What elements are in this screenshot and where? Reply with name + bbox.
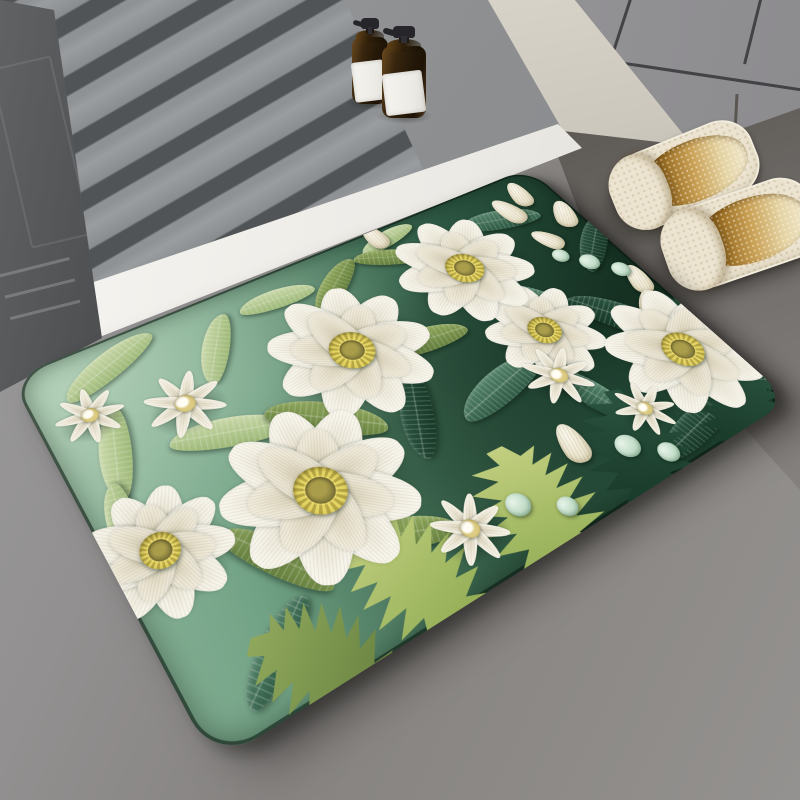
amber-bottle-right	[382, 26, 426, 118]
bottle-pump-stem	[368, 27, 372, 34]
flower-center-core	[334, 336, 370, 363]
bottle-pump-stem	[401, 36, 406, 43]
bottle-label	[381, 70, 425, 117]
flower-center-core	[299, 472, 342, 509]
mint-berry	[548, 247, 573, 264]
flower-center-core	[666, 336, 701, 362]
cabinet-seam	[743, 0, 762, 64]
flower-center-core	[145, 536, 176, 565]
white-flower-bud	[528, 227, 567, 252]
flower-center-core	[531, 320, 558, 340]
bathroom-scene-photo	[0, 0, 800, 800]
slab-emboss-pattern	[0, 250, 82, 328]
white-flower-bud	[548, 420, 598, 466]
flower-center-core	[449, 257, 480, 278]
